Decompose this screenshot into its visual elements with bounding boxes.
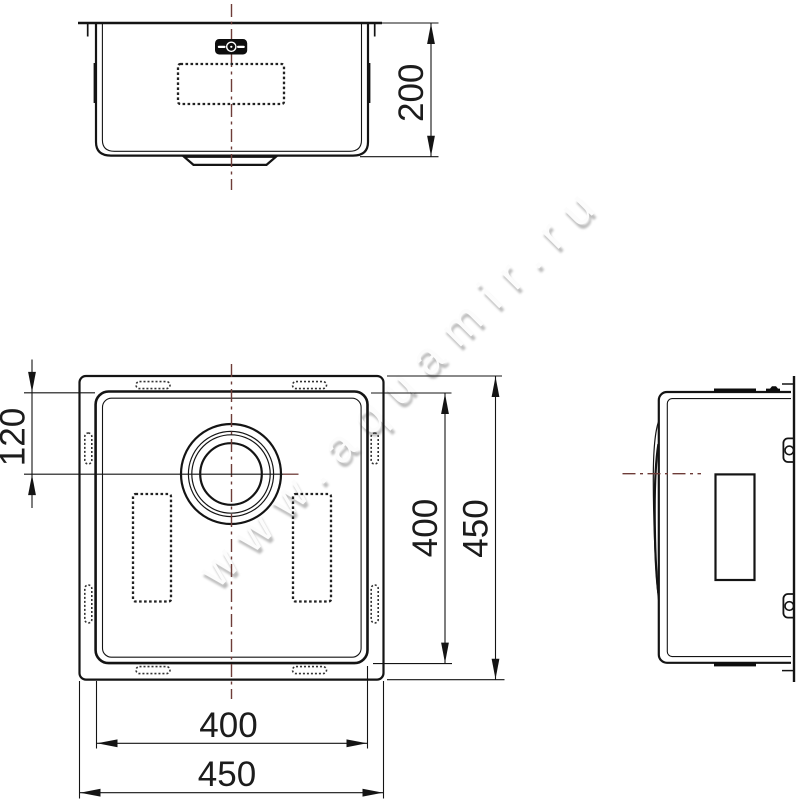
- svg-text:200: 200: [392, 64, 431, 122]
- svg-text:450: 450: [198, 755, 256, 794]
- svg-text:450: 450: [457, 499, 496, 557]
- svg-text:400: 400: [406, 499, 445, 557]
- svg-text:400: 400: [199, 706, 257, 745]
- svg-text:120: 120: [0, 408, 33, 466]
